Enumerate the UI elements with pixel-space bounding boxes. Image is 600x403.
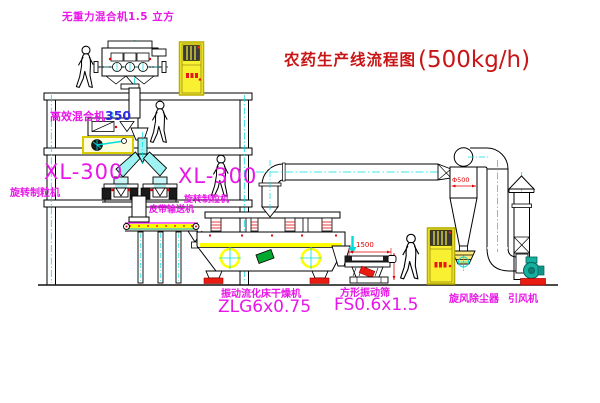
mixer2-model: 350: [105, 108, 131, 123]
label-granulator-left-name: 旋转制粒机: [10, 189, 60, 199]
belt-conveyor: [124, 223, 203, 283]
exhaust-duct: [256, 160, 451, 217]
granulator-discharge-pipe: [129, 196, 149, 222]
diagram-canvas: 无重力混合机1.5 立方 农药生产线流程图 (500kg/h) 高效混合机350…: [0, 0, 600, 403]
label-dryer-model: ZLG6x0.75: [218, 299, 311, 316]
label-high-efficiency-mixer: 高效混合机350: [50, 110, 131, 123]
label-granulator-right-model: XL-300: [178, 166, 257, 187]
spring-mounts: [211, 218, 332, 231]
title-capacity: (500kg/h): [418, 49, 530, 72]
person-second-floor: [150, 101, 167, 142]
induced-draft-fan: [516, 254, 546, 285]
downcomer-duct: [468, 148, 519, 271]
label-gravity-free-mixer: 无重力混合机1.5 立方: [62, 12, 174, 23]
label-fan: 引风机: [508, 295, 538, 305]
fluid-bed-dryer: [197, 212, 345, 284]
label-cyclone: 旋风除尘器: [449, 295, 499, 305]
label-granulator-right-name: 旋转制粒机: [184, 196, 229, 205]
control-cabinet-lower: [428, 228, 455, 284]
dim-cyclone-diameter: Φ500: [452, 177, 470, 184]
diagram-title: 农药生产线流程图 (500kg/h): [284, 49, 530, 72]
label-sieve-model: FS0.6x1.5: [334, 297, 418, 314]
dryer-feet: [204, 271, 329, 284]
control-cabinet-upper: [180, 42, 204, 95]
conveyor-legs: [138, 232, 181, 283]
title-text: 农药生产线流程图: [284, 53, 416, 69]
person-top-floor: [76, 46, 93, 87]
granulator-right: [141, 177, 179, 202]
label-belt-conveyor: 皮带输送机: [149, 206, 194, 215]
person-ground: [401, 234, 419, 279]
label-granulator-left-model: XL-300: [44, 162, 123, 183]
fan-base: [521, 279, 546, 286]
dim-sieve-length: 1500: [356, 242, 374, 249]
